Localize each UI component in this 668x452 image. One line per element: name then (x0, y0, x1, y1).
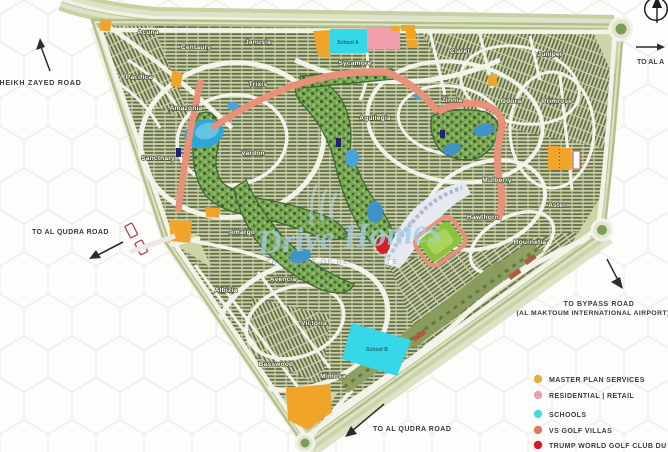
svg-text:TO AL QUDRA ROAD: TO AL QUDRA ROAD (32, 229, 109, 236)
svg-text:Claret: Claret (450, 48, 470, 55)
svg-text:TRUMP WORLD GOLF CLUB DU: TRUMP WORLD GOLF CLUB DU (549, 443, 667, 450)
svg-text:THE PULSE OF REAL ESTATE: THE PULSE OF REAL ESTATE (266, 259, 398, 266)
svg-text:Amazonia: Amazonia (170, 105, 203, 112)
svg-text:School B: School B (366, 347, 388, 353)
svg-text:Zinnia: Zinnia (442, 97, 463, 104)
svg-text:Avencia: Avencia (270, 276, 297, 283)
svg-text:VS GOLF VILLAS: VS GOLF VILLAS (549, 428, 612, 435)
svg-text:(AL MAKTOUM INTERNATIONAL AIRP: (AL MAKTOUM INTERNATIONAL AIRPORT) (516, 310, 668, 317)
svg-text:Sycamore: Sycamore (338, 60, 371, 67)
svg-text:Janusia: Janusia (245, 39, 271, 46)
svg-text:Albizia: Albizia (215, 287, 238, 294)
svg-text:Sanctnary: Sanctnary (141, 155, 175, 162)
svg-text:TO AL QUDRA ROAD: TO AL QUDRA ROAD (373, 426, 451, 433)
svg-text:MASTER PLAN SERVICES: MASTER PLAN SERVICES (549, 377, 645, 384)
svg-text:Rournetia: Rournetia (514, 239, 547, 246)
svg-text:School A: School A (337, 40, 359, 46)
svg-text:RESIDENTIAL | RETAIL: RESIDENTIAL | RETAIL (549, 393, 634, 400)
svg-text:Vardon: Vardon (241, 150, 265, 157)
svg-text:Acuna: Acuna (137, 29, 158, 36)
svg-text:TO BYPASS ROAD: TO BYPASS ROAD (564, 301, 635, 308)
svg-text:SCHOOLS: SCHOOLS (549, 412, 586, 419)
svg-text:Mulberry: Mulberry (482, 177, 512, 184)
svg-text:Basswood: Basswood (259, 361, 294, 368)
svg-text:Aguilegia: Aguilegia (359, 115, 391, 122)
svg-text:Centaury: Centaury (181, 44, 211, 51)
svg-text:SHEIKH ZAYED ROAD: SHEIKH ZAYED ROAD (0, 80, 82, 87)
svg-text:Amargo: Amargo (229, 229, 255, 236)
svg-text:Aster: Aster (548, 202, 566, 209)
svg-text:Trixis: Trixis (249, 81, 268, 88)
svg-text:Victoria: Victoria (301, 320, 327, 327)
svg-text:Odora: Odora (501, 98, 522, 105)
svg-text:TO AL A: TO AL A (637, 59, 664, 66)
svg-text:Mimosa: Mimosa (320, 373, 346, 380)
svg-text:Juniper: Juniper (537, 51, 562, 58)
svg-text:Primrose: Primrose (542, 98, 572, 105)
svg-text:Hawthorn: Hawthorn (467, 214, 499, 221)
svg-text:Pacifica: Pacifica (126, 74, 153, 81)
